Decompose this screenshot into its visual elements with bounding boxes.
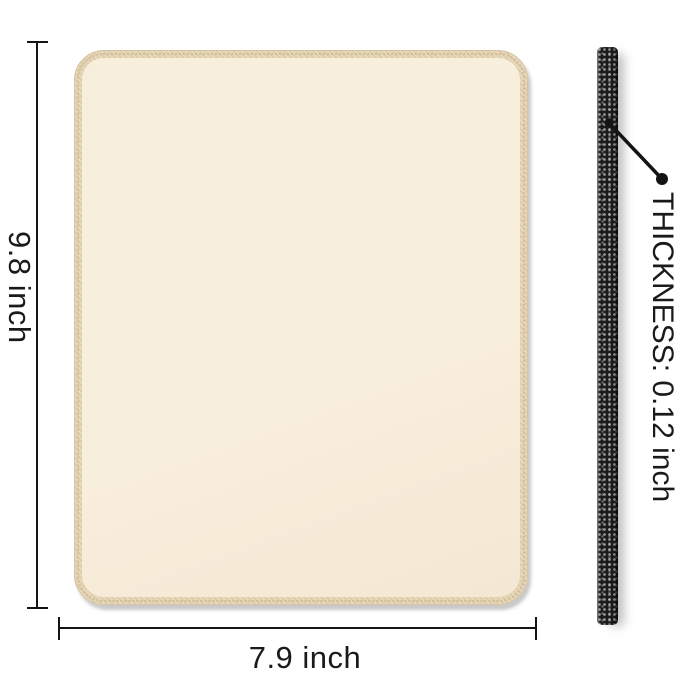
width-dimension-line [59,627,537,629]
callout-dot-end [656,173,668,185]
mousepad-surface [82,58,520,597]
width-label: 7.9 inch [66,641,544,675]
side-view-strip [597,47,618,625]
height-dimension-tick-bottom [27,607,48,609]
width-dimension-tick-left [58,617,60,640]
width-dimension-tick-right [535,617,537,640]
mousepad-top-view [74,50,528,605]
height-dimension-tick-top [27,41,48,43]
height-label: 9.8 inch [2,231,36,344]
thickness-label: THICKNESS: 0.12 inch [646,192,679,502]
